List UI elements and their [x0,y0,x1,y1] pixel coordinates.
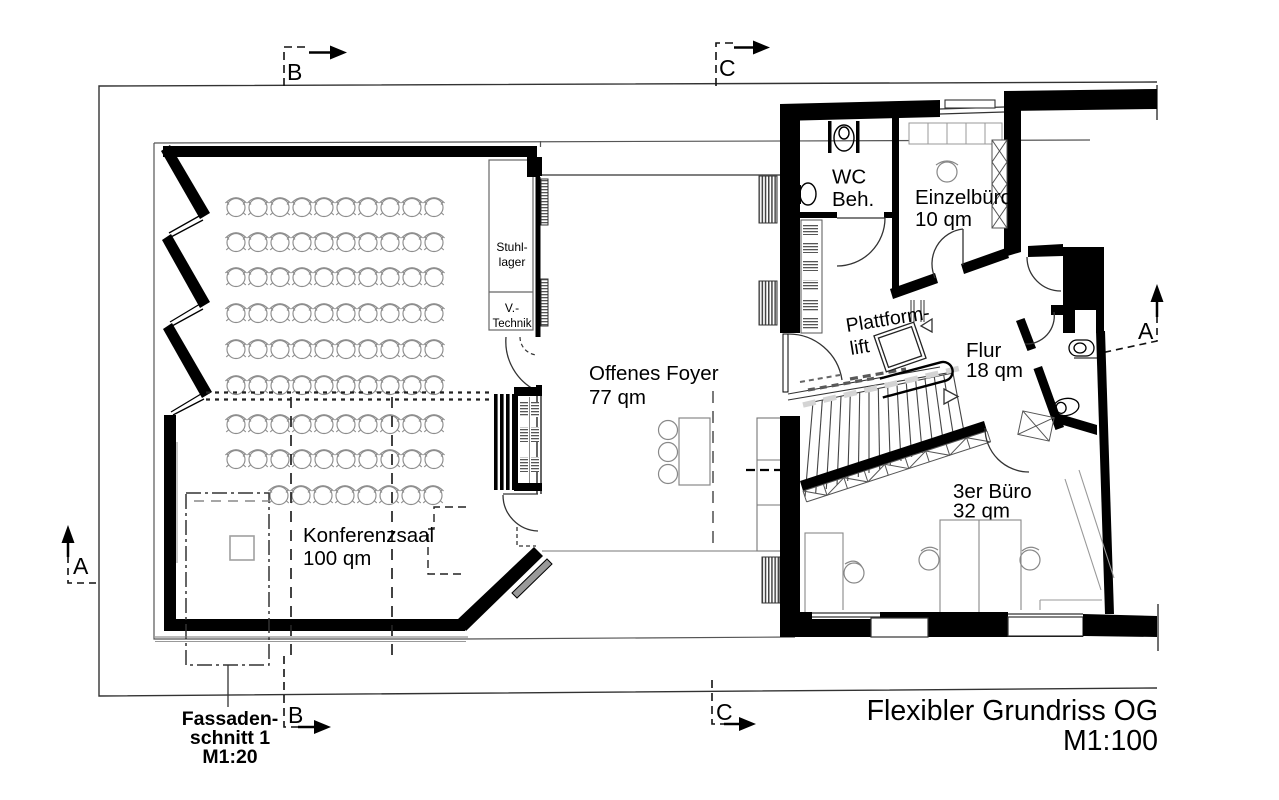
svg-text:Flexibler Grundriss OG: Flexibler Grundriss OG [867,695,1158,727]
svg-text:WC: WC [832,166,866,189]
svg-text:lift: lift [848,335,871,360]
svg-text:V.-: V.- [505,301,519,315]
svg-text:100 qm: 100 qm [303,547,371,570]
svg-text:10 qm: 10 qm [915,208,972,231]
svg-text:Einzelbüro: Einzelbüro [915,186,1012,209]
svg-text:C: C [719,55,736,81]
svg-text:A: A [1138,318,1154,344]
svg-text:Konferenzsaal: Konferenzsaal [303,524,434,547]
svg-text:Offenes Foyer: Offenes Foyer [589,362,719,385]
svg-text:32 qm: 32 qm [953,500,1010,523]
svg-text:Beh.: Beh. [832,188,874,211]
svg-text:18 qm: 18 qm [966,359,1023,382]
svg-text:B: B [287,59,302,85]
svg-text:M1:20: M1:20 [202,746,257,768]
svg-text:C: C [716,699,733,725]
svg-text:Stuhl-: Stuhl- [496,240,527,254]
svg-text:A: A [73,553,89,579]
svg-text:M1:100: M1:100 [1063,725,1158,757]
svg-text:B: B [288,702,303,728]
svg-text:Technik: Technik [493,318,532,330]
svg-text:77 qm: 77 qm [589,386,646,409]
svg-text:lager: lager [499,255,526,269]
